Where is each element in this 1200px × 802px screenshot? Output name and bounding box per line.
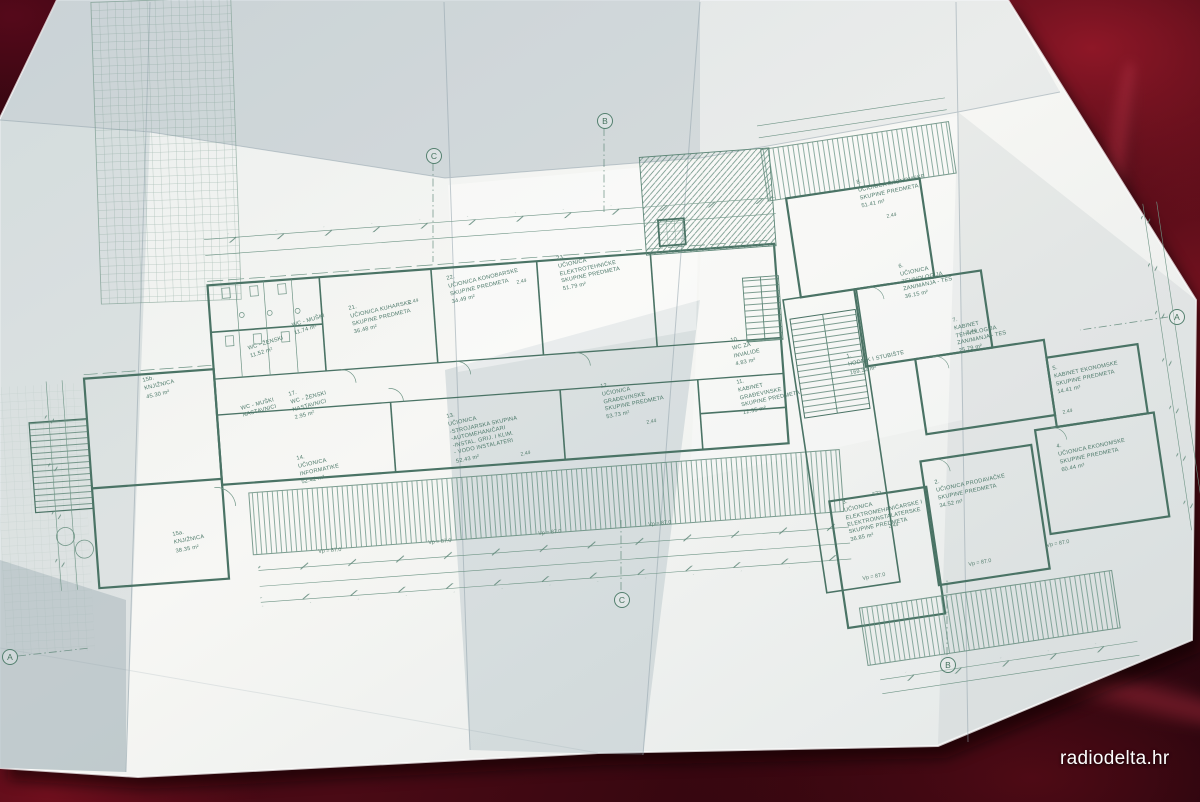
hatched-grid-block <box>91 0 241 304</box>
blueprint-sheet-art <box>0 0 1200 802</box>
blueprint-photo: 15b. KNJIŽNICA 45.30 m² WC - ŽENSKI 11.5… <box>0 0 1200 802</box>
watermark: radiodelta.hr <box>1060 748 1170 770</box>
